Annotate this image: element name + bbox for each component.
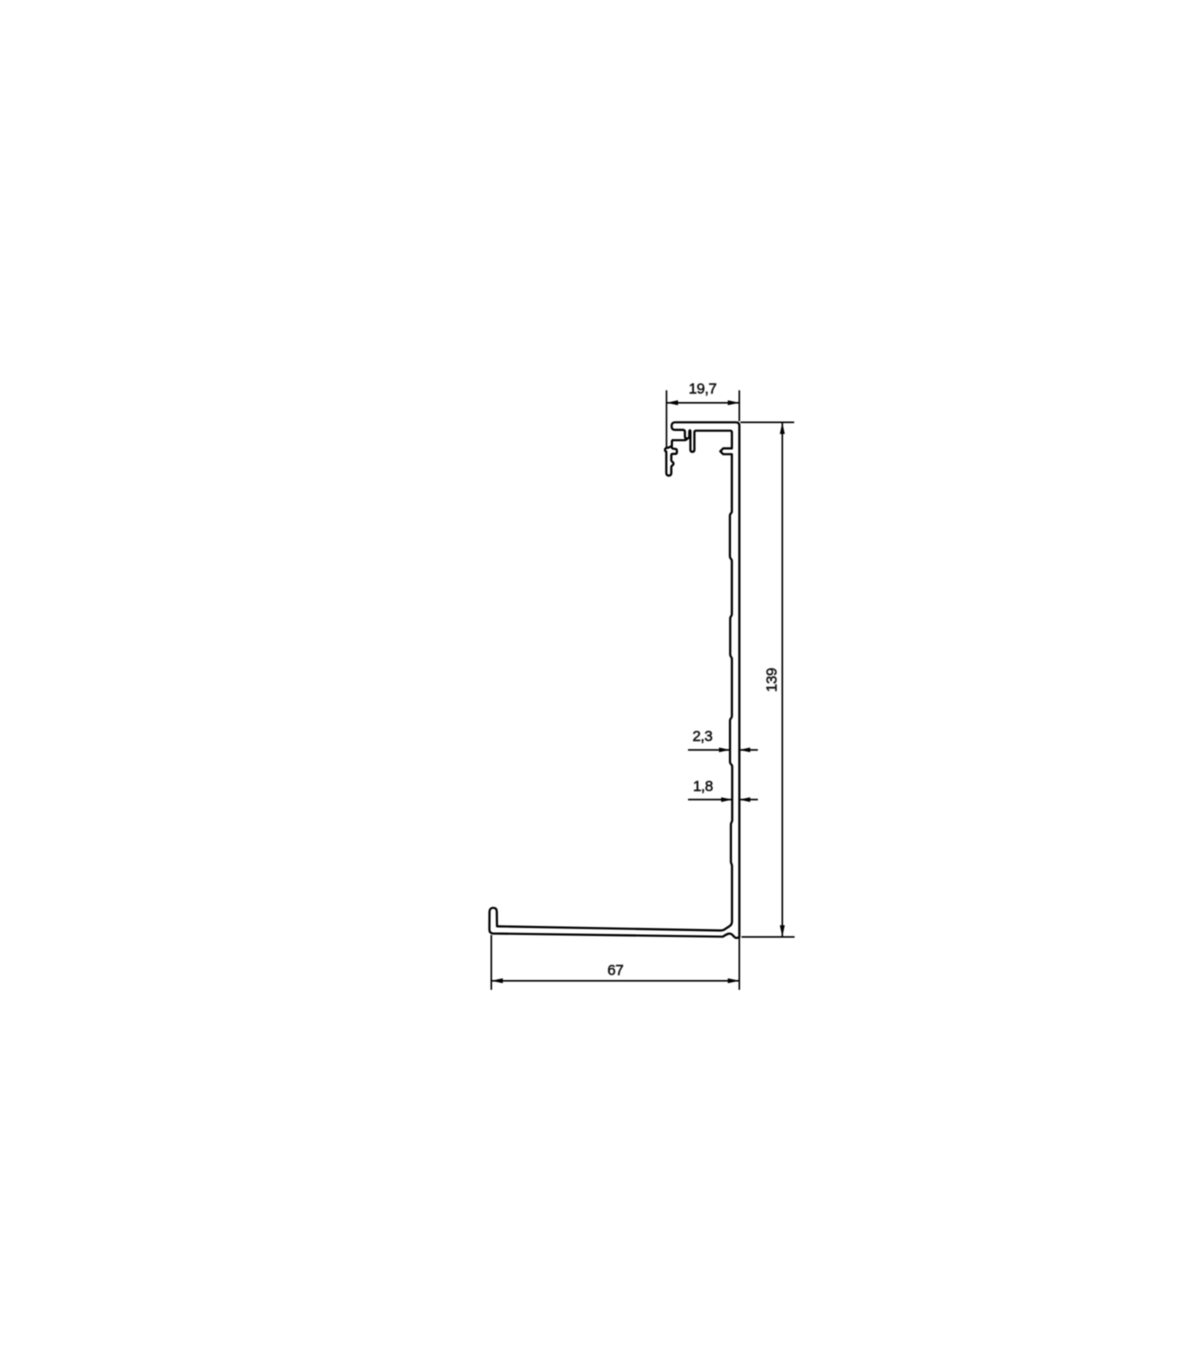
svg-text:1,8: 1,8 bbox=[693, 778, 713, 795]
svg-text:2,3: 2,3 bbox=[693, 728, 713, 745]
svg-text:139: 139 bbox=[763, 668, 780, 692]
svg-text:67: 67 bbox=[607, 962, 623, 979]
svg-text:19,7: 19,7 bbox=[689, 380, 717, 397]
